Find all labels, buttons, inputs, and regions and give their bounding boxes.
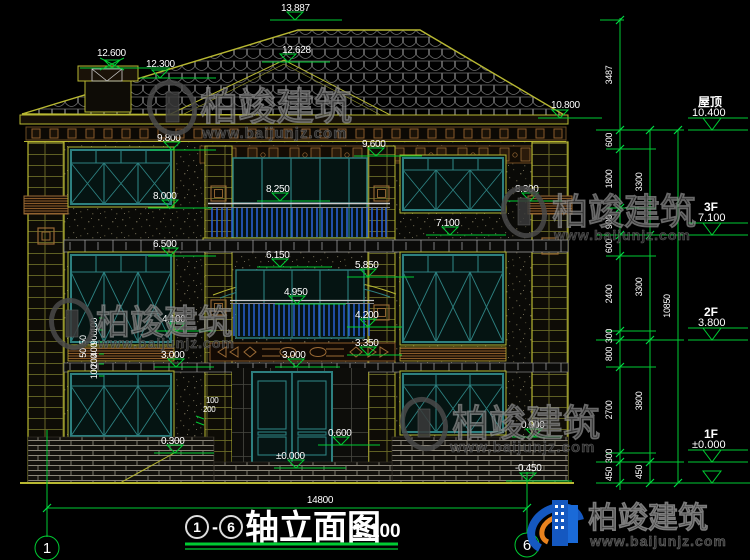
svg-text:8.250: 8.250 [266,184,290,195]
chimney [78,66,138,112]
svg-text:3487: 3487 [604,65,614,84]
svg-text:柏竣建筑: 柏竣建筑 [452,402,600,444]
svg-text:柏竣建筑: 柏竣建筑 [552,191,696,232]
title-axis-from: 1 [193,519,201,535]
svg-text:200: 200 [203,405,216,414]
svg-text:3.800: 3.800 [698,317,726,329]
svg-text:4.200: 4.200 [355,310,379,321]
svg-text:3300: 3300 [634,172,644,191]
svg-text:6.500: 6.500 [153,239,177,250]
svg-text:7.100: 7.100 [436,218,460,229]
svg-text:3.350: 3.350 [355,338,379,349]
svg-text:±0.000: ±0.000 [276,451,305,462]
svg-text:4.950: 4.950 [284,287,308,298]
pier-left-corner [24,142,68,483]
floor-label-roof: 屋顶 10.400 [688,95,748,130]
title-scale: 1:100 [352,521,401,542]
svg-text:www.baijunjz.com: www.baijunjz.com [589,533,727,549]
svg-text:50: 50 [78,348,88,358]
svg-text:2700: 2700 [604,400,614,419]
svg-text:柏竣建筑: 柏竣建筑 [200,87,352,129]
brick-base-left [28,437,214,483]
svg-text:12.300: 12.300 [146,59,176,70]
svg-text:7.100: 7.100 [698,212,726,224]
svg-text:450: 450 [634,465,644,479]
title-axis-to: 6 [227,519,235,535]
svg-text:10.800: 10.800 [551,100,581,111]
floor-labels-right: 屋顶 10.400 3F 7.100 2F 3.800 1F ±0.000 [660,95,750,483]
svg-text:9.600: 9.600 [362,139,386,150]
svg-text:450: 450 [604,467,614,481]
svg-text:6.150: 6.150 [266,250,290,261]
floor-label-2f: 2F 3.800 [688,305,748,340]
svg-text:600: 600 [604,133,614,147]
svg-text:13.887: 13.887 [281,3,311,14]
svg-text:1800: 1800 [604,169,614,188]
svg-text:300: 300 [604,329,614,343]
drawing-title: 1 - 6 轴立面图 1:100 [185,509,401,549]
svg-text:www.baijunjz.com: www.baijunjz.com [201,125,347,142]
chain-inner-values: 3487 600 1800 900 600 2400 300 800 2700 … [604,65,614,481]
svg-text:3.000: 3.000 [161,350,185,361]
window-2f-right [400,252,506,345]
width-dim-value: 14800 [307,495,334,506]
svg-text:8.000: 8.000 [153,191,177,202]
window-3f-right [400,155,506,213]
svg-text:柏竣建筑: 柏竣建筑 [588,501,708,535]
svg-text:3300: 3300 [634,277,644,296]
svg-text:3.000: 3.000 [282,350,306,361]
svg-text:5.850: 5.850 [355,260,379,271]
axis-bubble-1-number: 1 [43,540,51,557]
louvre-band-right [400,347,506,361]
svg-text:0.600: 0.600 [328,428,352,439]
svg-text:www.baijunjz.com: www.baijunjz.com [449,439,595,456]
drawing-canvas: 13.887 12.628 12.600 12.300 10.800 9.800… [0,0,750,560]
floor-label-grade [660,471,750,483]
chain-outer-value: 10850 [662,294,672,318]
svg-text:www.baijunjz.com: www.baijunjz.com [97,335,235,351]
svg-text:100: 100 [206,396,219,405]
svg-text:300: 300 [604,449,614,463]
level-marker-peak: 13.887 [270,3,342,20]
dimension-chains-right: 3487 600 1800 900 600 2400 300 800 2700 … [596,16,684,490]
pier-mid-right [368,146,395,467]
svg-text:12.600: 12.600 [97,48,127,59]
svg-text:±0.000: ±0.000 [692,439,726,451]
svg-text:800: 800 [604,347,614,361]
watermark-right: 柏竣建筑 www.baijunjz.com [497,183,696,243]
svg-text:3800: 3800 [634,391,644,410]
logo-building [552,500,578,546]
svg-text:0.300: 0.300 [161,436,185,447]
svg-text:12.628: 12.628 [282,45,312,56]
floor-label-1f: 1F ±0.000 [688,427,748,462]
svg-text:www.baijunjz.com: www.baijunjz.com [553,227,691,243]
svg-text:10.400: 10.400 [692,107,726,119]
floor-label-3f: 3F 7.100 [688,200,748,235]
svg-text:100: 100 [89,365,99,379]
floor-band-3f [64,240,568,252]
svg-text:2400: 2400 [604,284,614,303]
svg-text:-0.450: -0.450 [515,463,542,474]
dim-ticks [616,16,682,487]
window-1f-left [68,371,174,439]
cad-elevation-drawing: 13.887 12.628 12.600 12.300 10.800 9.800… [0,0,750,560]
brick-base-center [214,462,392,483]
logo-bottom-right: 柏竣建筑 www.baijunjz.com [531,500,727,549]
title-dash: - [212,517,218,537]
